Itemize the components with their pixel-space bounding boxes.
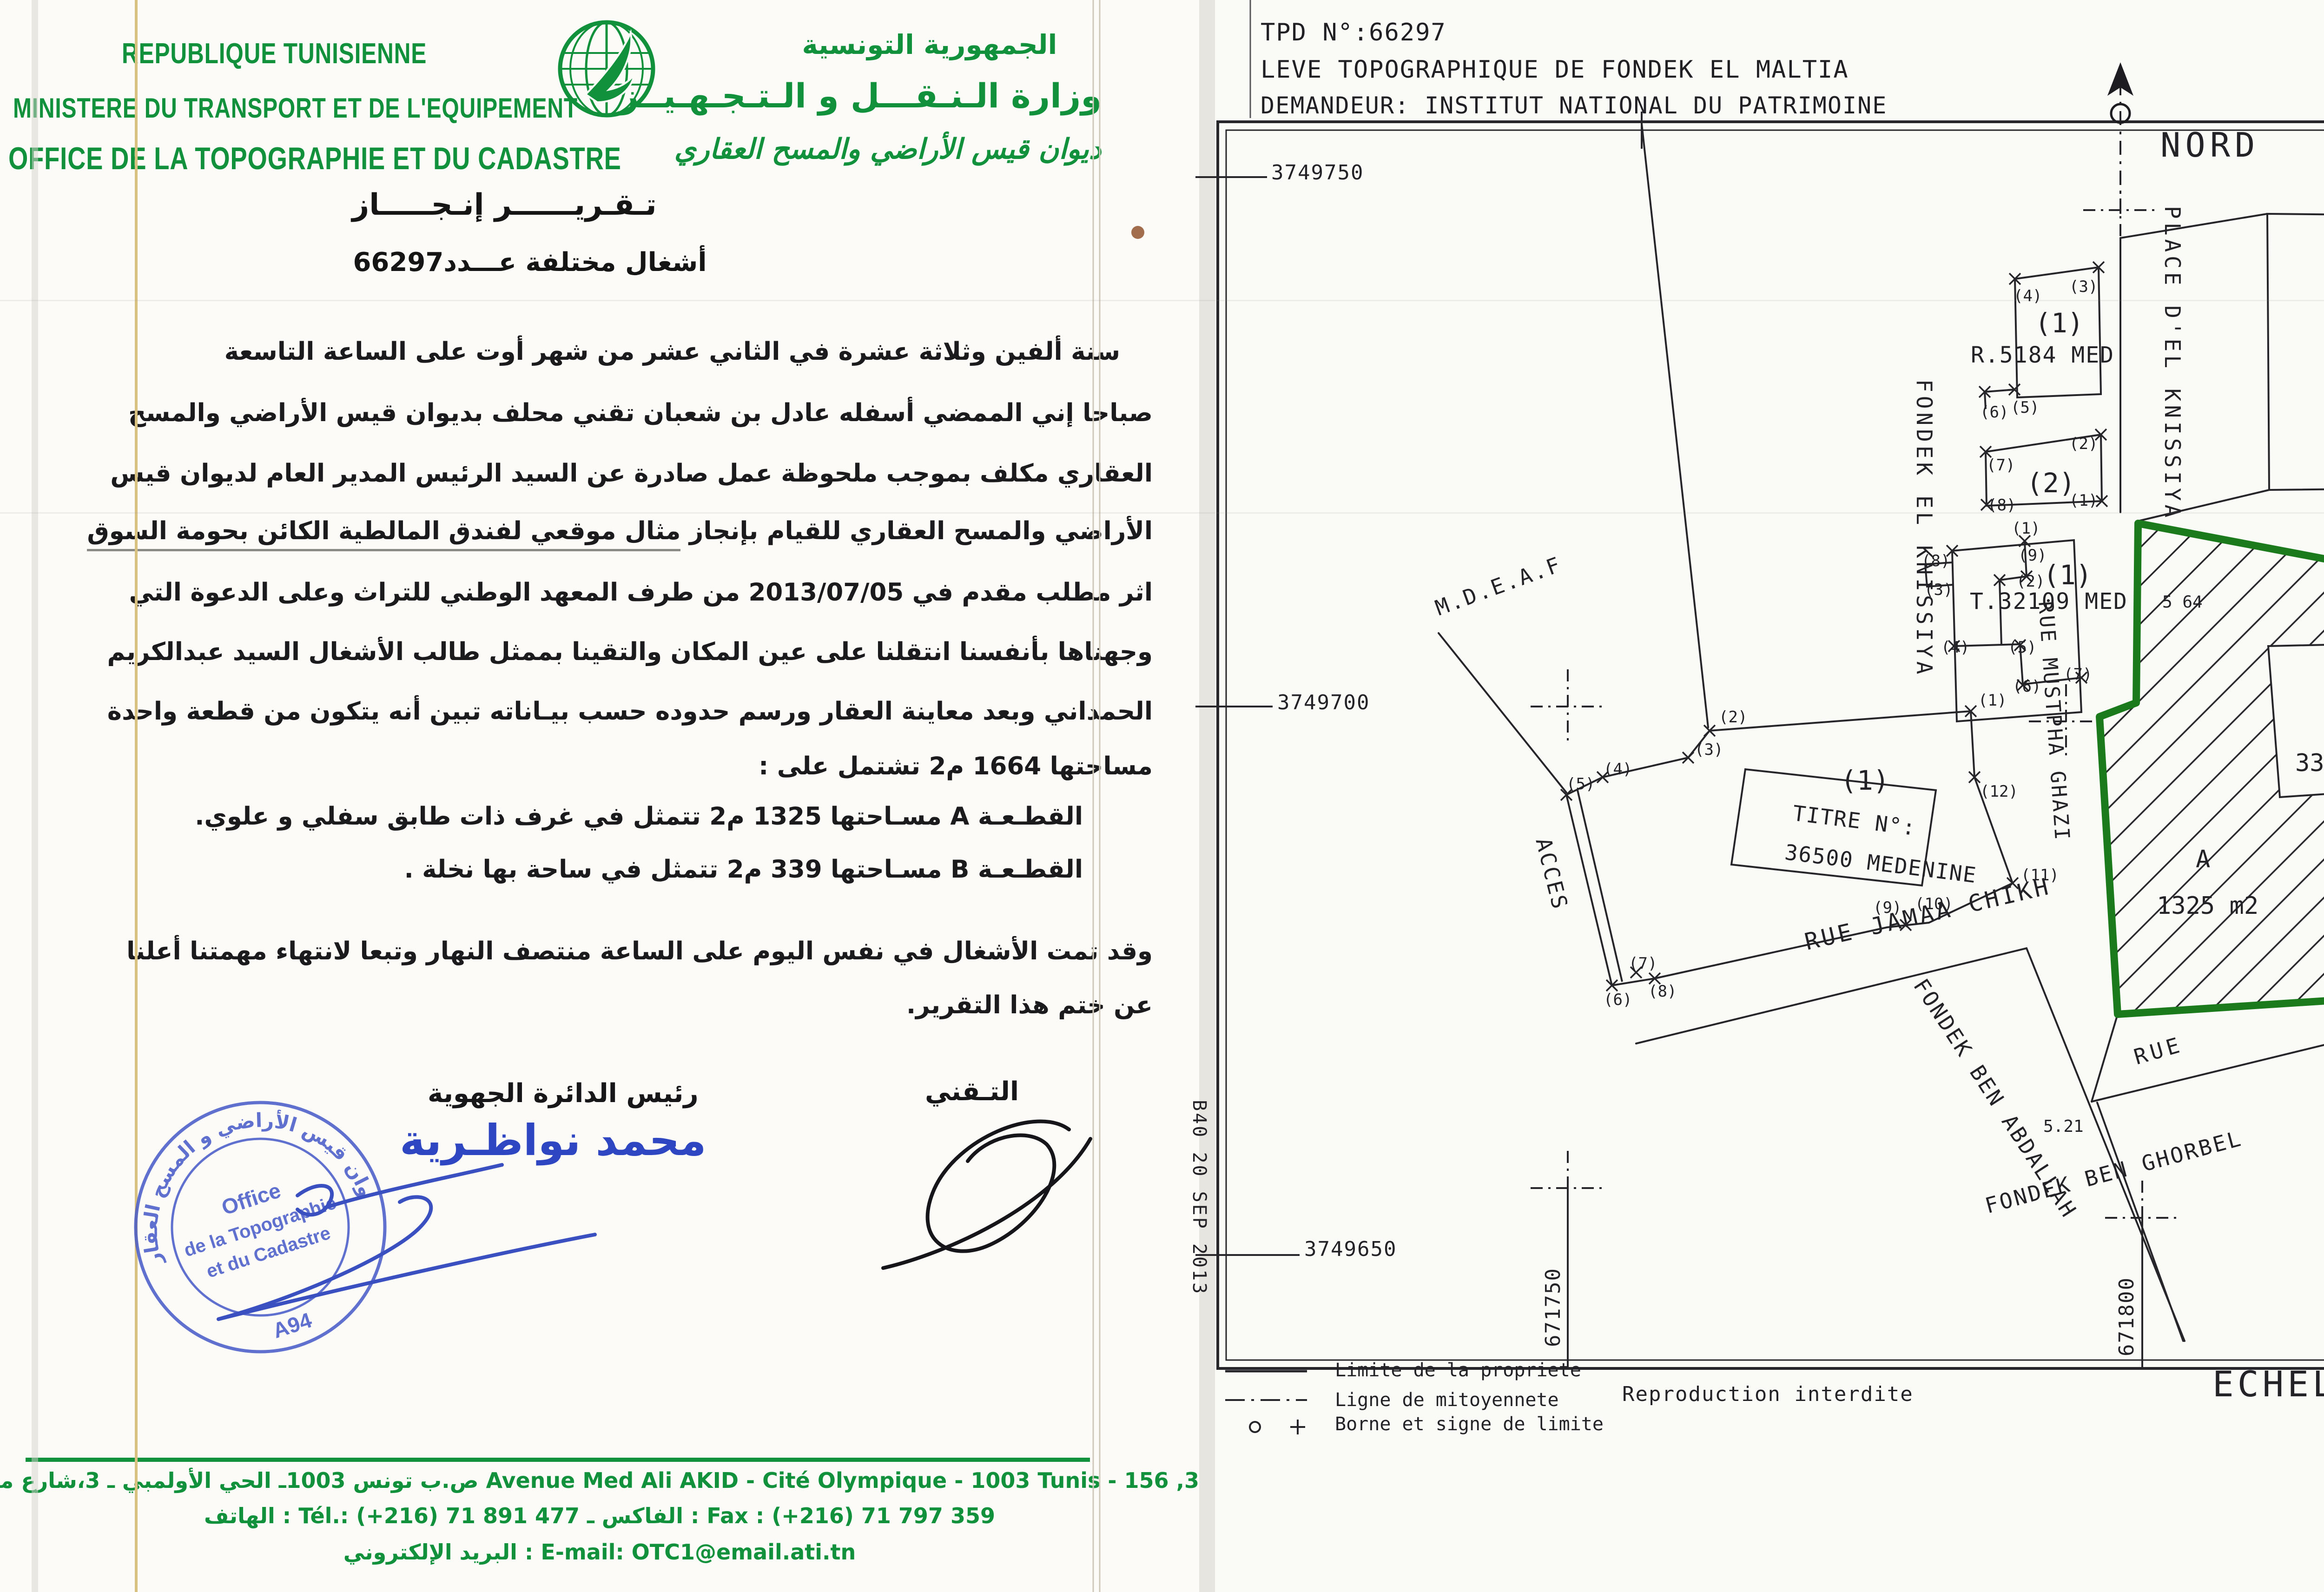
otc-globe-logo [546,8,667,129]
vertex-label-2: (2) [2069,436,2098,452]
legend-borne-circle [1250,1422,1260,1432]
fondek-el-knissiya-label: FONDEK EL KNISSIYA [1914,379,1935,678]
vertex-label-6: (6) [1980,404,2008,420]
coord-y-3749750: 3749750 [1271,163,1364,183]
parcel-a-letter: A [2196,847,2210,872]
echelle-label: ECHELLE: 1:500 [2212,1367,2324,1402]
vertex-label-8: (8) [1921,553,1950,569]
dim-5-21: 5.21 [2043,1118,2084,1135]
vertex-label-4: (4) [1941,640,1969,655]
dim-5-64: 5 64 [2162,594,2203,611]
parcel-b-area: 339 m2 [2295,751,2324,775]
plan-ref-date: B40 20 SEP 2013 [1190,1100,1208,1295]
legend-limite-label: Limite de la propriete [1335,1361,1581,1380]
vertex-label-10: (10) [1915,896,1953,912]
vertex-label-7: (7) [2064,667,2092,682]
vertex-label-8: (8) [1648,984,1677,999]
technician-signature [883,1121,1090,1268]
legend-borne-label: Borne et signe de limite [1335,1415,1604,1433]
vertex-label-7: (7) [1987,457,2015,473]
vertex-label-5: (5) [1566,776,1595,792]
vertex-label-4: (4) [2014,288,2042,304]
legend-mitoyennete-label: Ligne de mitoyennete [1335,1391,1559,1409]
vertex-label-1: (1) [1978,693,2007,708]
vertex-label-1: (1) [2035,310,2084,337]
vertex-label-9: (9) [1873,900,1901,916]
vertex-label-6: (6) [2013,679,2041,694]
parcel-a-area: 1325 m2 [2157,894,2258,918]
vertex-label-2: (2) [2016,574,2045,589]
vertex-label-2: (2) [1719,709,1747,725]
vertex-label-8: (8) [1987,497,2016,513]
coord-x-671800: 671800 [2117,1277,2137,1356]
vertex-label-3: (3) [2069,279,2098,295]
vertex-label-12: (12) [1980,784,2018,799]
otc-round-stamp-report: ديوان قيس الأراضي و المسح العقاري Office… [103,1070,417,1384]
vertex-label-11: (11) [2021,867,2059,883]
cinema-building-outline [2267,214,2324,490]
vertex-label-3: (3) [1924,582,1953,598]
grid-lines [1568,1188,2324,1368]
vertex-label-1: (1) [2069,493,2098,509]
scanned-survey-report: REPUBLIQUE TUNISIENNE MINISTERE DU TRANS… [0,0,2324,1592]
coord-y-3749700: 3749700 [1277,693,1370,713]
vertex-label-1: (1) [1841,767,1889,794]
plan-linework: ديوان قيس الأراضي و المسح العقاري Office… [0,0,2324,1592]
vertex-label-6: (6) [1604,992,1632,1008]
vertex-label-1: (1) [2043,561,2092,588]
legend-symbols [1225,1371,1307,1434]
vertex-label-7: (7) [1629,956,1657,971]
coord-x-671750: 671750 [1543,1268,1564,1347]
north-label: NORD [2160,128,2259,162]
vertex-label-5: (5) [2008,640,2036,655]
north-arrow-icon [2107,62,2133,214]
vertex-label-1: (1) [2012,521,2040,536]
place-del-knissiya-label: PLACE D'EL KNISSIYA [2162,206,2183,521]
vertex-label-4: (4) [1604,761,1632,777]
vertex-label-9: (9) [2018,548,2047,563]
vertex-label-2: (2) [2027,469,2075,496]
legend-borne-cross [1290,1420,1305,1434]
parcel-r5184-name: R.5184 MED [1971,344,2114,366]
subject-parcel [2100,523,2324,1014]
reproduction-interdite-label: Reproduction interdite [1622,1384,1914,1405]
vertex-label-3: (3) [1695,742,1723,758]
coord-y-3749650: 3749650 [1304,1239,1397,1260]
vertex-label-5: (5) [2011,400,2039,416]
